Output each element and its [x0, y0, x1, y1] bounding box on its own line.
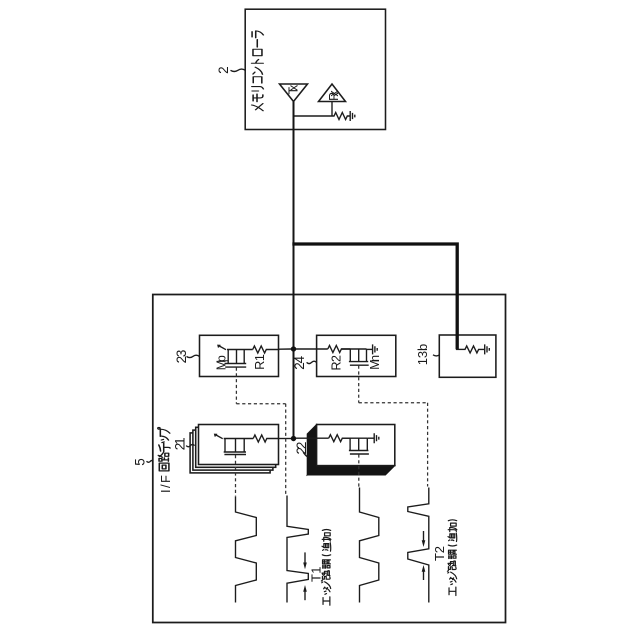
svg-text:Rx: Rx — [327, 90, 341, 101]
svg-text:R1: R1 — [253, 354, 267, 370]
svg-text:2: 2 — [216, 66, 231, 74]
svg-text:I/F: I/F — [158, 475, 173, 493]
svg-text:21: 21 — [173, 437, 188, 450]
svg-text:5: 5 — [133, 458, 148, 466]
svg-text:R2: R2 — [330, 355, 344, 371]
svg-text:13b: 13b — [415, 344, 430, 366]
svg-text:Mn: Mn — [368, 355, 382, 370]
svg-text:T1: T1 — [308, 567, 323, 583]
svg-text:T2: T2 — [432, 546, 447, 561]
svg-text:22: 22 — [294, 442, 309, 455]
svg-text:Tx: Tx — [287, 84, 301, 95]
svg-text:Mp: Mp — [214, 355, 228, 370]
